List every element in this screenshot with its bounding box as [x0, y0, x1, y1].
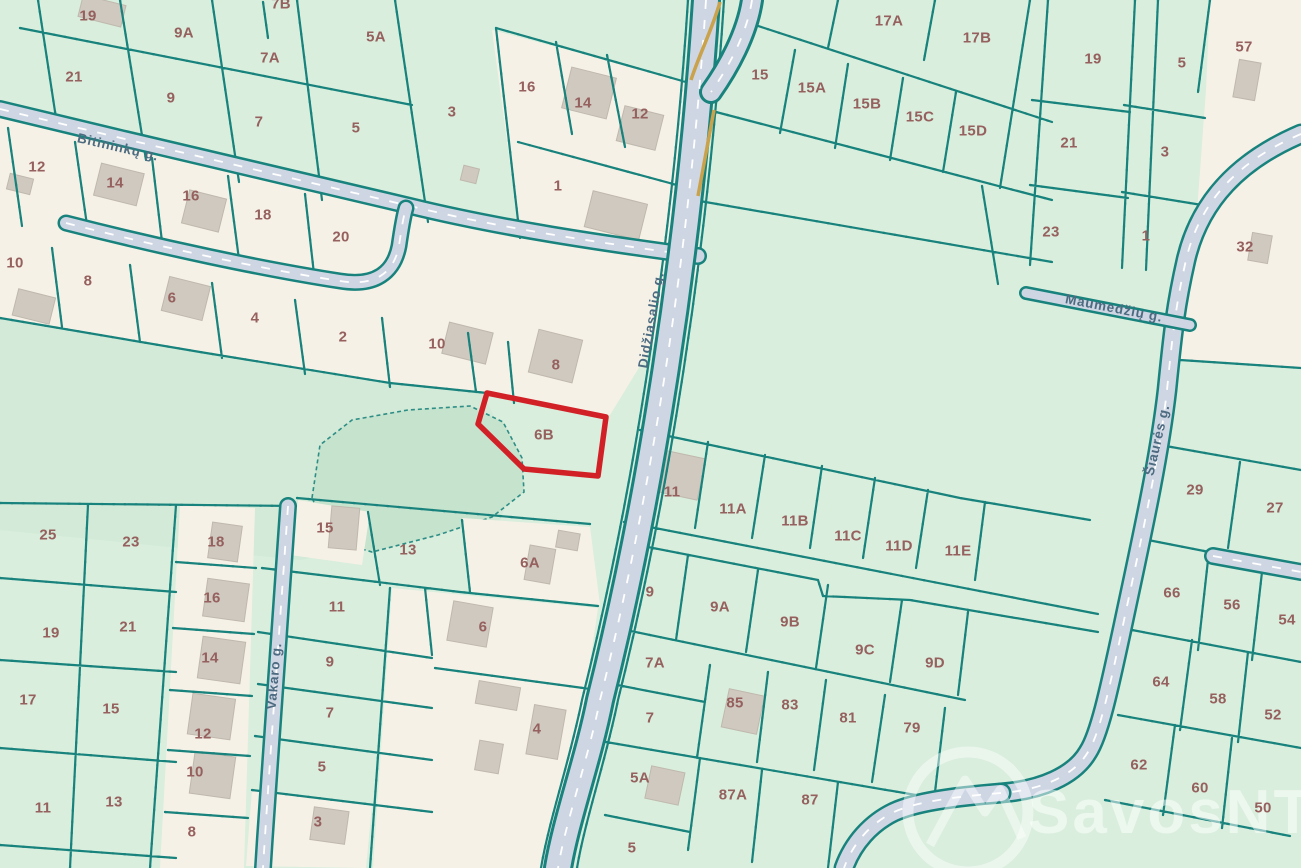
- map-canvas: SavosNT: [0, 0, 1301, 868]
- road-maumedziu: [1026, 293, 1190, 325]
- watermark-text: SavosNT: [1028, 778, 1301, 847]
- map-viewport[interactable]: SavosNT 199A7B7A21975A531614121121416182…: [0, 0, 1301, 868]
- road-stub-east: [1213, 556, 1301, 572]
